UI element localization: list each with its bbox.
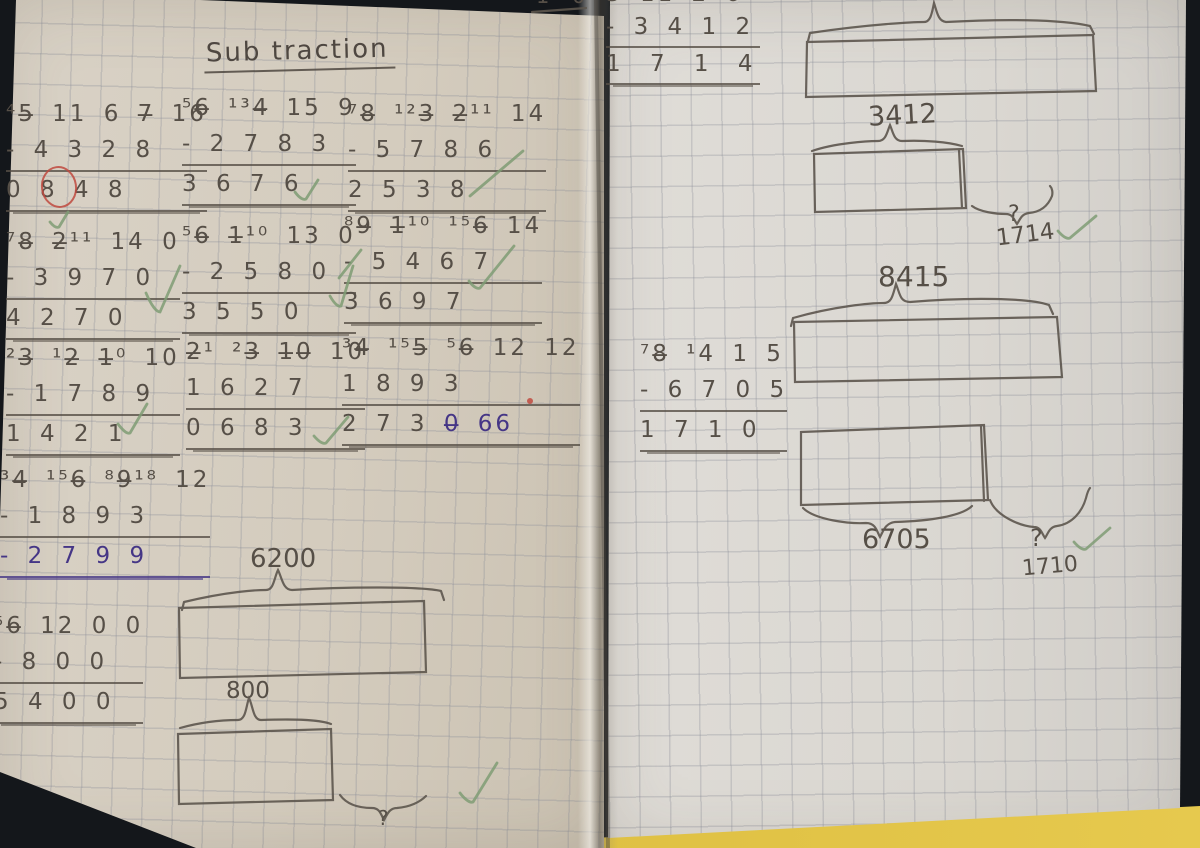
subtrahend-line: - 2 7 8 3: [182, 126, 356, 166]
subtraction-problem-2: ⁵6̶ ¹³4̶ 15 9 - 2 7 8 3 3 6 7 6: [182, 90, 356, 206]
minuend-line: ³4̶ ¹⁵6̶ ⁸9̶¹⁸ 12: [0, 462, 210, 498]
subtraction-problem-right-2: ⁷8̶ ¹4 1 5 - 6 7 0 5 1 7 1 0: [640, 336, 787, 452]
subtrahend-line: - 1 8 9 3: [0, 498, 210, 538]
result-line: 0 6 8 3: [186, 410, 365, 450]
subtraction-problem-9: ³4̶ ¹⁵5̶ ⁵6̶ 12 12 1 8 9 3 2 7 3 0̶ 66: [342, 330, 580, 446]
right-bar2-total-label: 8415: [878, 260, 949, 293]
subtrahend-line: - 5 4 6 7: [344, 244, 542, 284]
result-line: 1 4 2 1: [6, 416, 180, 456]
subtraction-problem-3: ⁷8̶ ¹²3̶ 2̶¹¹ 14 - 5 7 8 6 2 5 3 8: [348, 96, 546, 212]
subtrahend-line: - 3 9 7 0: [6, 260, 180, 300]
subtrahend-line: 1 6 2 7: [186, 370, 365, 410]
result-line: 1 7 1 4: [606, 48, 760, 85]
subtraction-problem-10: ³4̶ ¹⁵6̶ ⁸9̶¹⁸ 12 - 1 8 9 3 - 2 7 9 9: [0, 462, 210, 578]
result-line: 4 2 7 0: [6, 300, 180, 340]
subtraction-problem-1: ⁴5̶ 11 6 7̶ 16 - 4 3 2 8 0 8 4 8: [6, 96, 207, 212]
minuend-line: ²3̶ ¹2̶ 1̶⁰ 10: [6, 340, 180, 376]
notebook-photo-scene: Sub traction 1 0 ⁴5̶ 11 6 7̶ 16 - 4 3 2 …: [0, 0, 1200, 848]
minuend-line: ⁷8̶ ¹4 1 5: [640, 336, 787, 372]
minuend-line: ⁷8̶ 2̶¹¹ 14 0: [6, 224, 180, 260]
subtraction-problem-4: ⁷8̶ 2̶¹¹ 14 0 - 3 9 7 0 4 2 7 0: [6, 224, 180, 340]
minuend-line: ³4̶ ¹⁵5̶ ⁵6̶ 12 12: [342, 330, 580, 366]
subtraction-problem-5: ⁵6̶ 1̶¹⁰ 13 0 - 2 5 8 0 3 5 5 0: [182, 218, 356, 334]
result-line: 0 8 4 8: [6, 172, 207, 212]
minuend-line: ⁴5̶ 11 6 7̶ 16: [6, 96, 207, 132]
subtrahend-line: - 4 3 2 8: [6, 132, 207, 172]
result-line: 5 4 0 0: [0, 684, 143, 724]
subtrahend-line: - 5 7 8 6: [348, 132, 546, 172]
minuend-line: ⁵6̶ 12 0 0: [0, 608, 143, 644]
subtraction-problem-11: ⁵6̶ 12 0 0 - 8 0 0 5 4 0 0: [0, 608, 143, 724]
result-line: 1 7 1 0: [640, 412, 787, 452]
result-line: 3 5 5 0: [182, 294, 356, 334]
minuend-line: 2̶¹ ²3̶ 1̶0̶ 10: [186, 334, 365, 370]
subtraction-problem-6: ⁸9̶ 1̶¹⁰ ¹⁵6̶ 14 - 5 4 6 7 3 6 9 7: [344, 208, 542, 324]
minuend-line: ⁷8̶ ¹²3̶ 2̶¹¹ 14: [348, 96, 546, 132]
minuend-line: ⁵6̶ ¹³4̶ 15 9: [182, 90, 356, 126]
subtrahend-line: 1 8 9 3: [342, 366, 580, 406]
fragment-underline: [532, 8, 586, 12]
clipped-answer-fragment: 1 0: [536, 0, 593, 8]
subtrahend-line: - 1 7 8 9: [6, 376, 180, 416]
right-bar2-unknown-label: ?: [1030, 524, 1043, 552]
left-bar-part-label: 800: [226, 678, 270, 704]
minuend-line: ⁵6̶ 1̶¹⁰ 13 0: [182, 218, 356, 254]
right-bar2-answer-label: 1710: [1021, 552, 1079, 582]
result-line: 3 6 7 6: [182, 166, 356, 206]
result-line: 3 6 9 7: [344, 284, 542, 324]
result-line: - 2 7 9 9: [0, 538, 210, 578]
page-title: Sub traction: [204, 34, 396, 74]
result-line: 2 5 3 8: [348, 172, 546, 212]
minuend-line: ⁸9̶ 1̶¹⁰ ¹⁵6̶ 14: [344, 208, 542, 244]
subtraction-problem-8: 2̶¹ ²3̶ 1̶0̶ 10 1 6 2 7 0 6 8 3: [186, 334, 365, 450]
subtrahend-line: - 8 0 0: [0, 644, 143, 684]
minuend-line: 5 11 2 6: [606, 0, 760, 11]
result-line: 2 7 3 0̶ 66: [342, 406, 580, 446]
result-original: 2 7 3: [342, 411, 428, 437]
left-bar-unknown-label: ?: [378, 806, 389, 830]
result-correction: 0̶ 66: [444, 411, 513, 437]
left-bar-total-label: 6200: [250, 544, 316, 574]
right-bar2-part-label: 6705: [862, 524, 931, 555]
subtrahend-line: - 3 4 1 2: [606, 11, 760, 48]
subtraction-problem-right-1: 5 11 2 6 - 3 4 1 2 1 7 1 4: [606, 0, 760, 85]
subtrahend-line: - 2 5 8 0: [182, 254, 356, 294]
subtraction-problem-7: ²3̶ ¹2̶ 1̶⁰ 10 - 1 7 8 9 1 4 2 1: [6, 340, 180, 456]
right-bar1-part-label: 3412: [867, 98, 937, 133]
subtrahend-line: - 6 7 0 5: [640, 372, 787, 412]
